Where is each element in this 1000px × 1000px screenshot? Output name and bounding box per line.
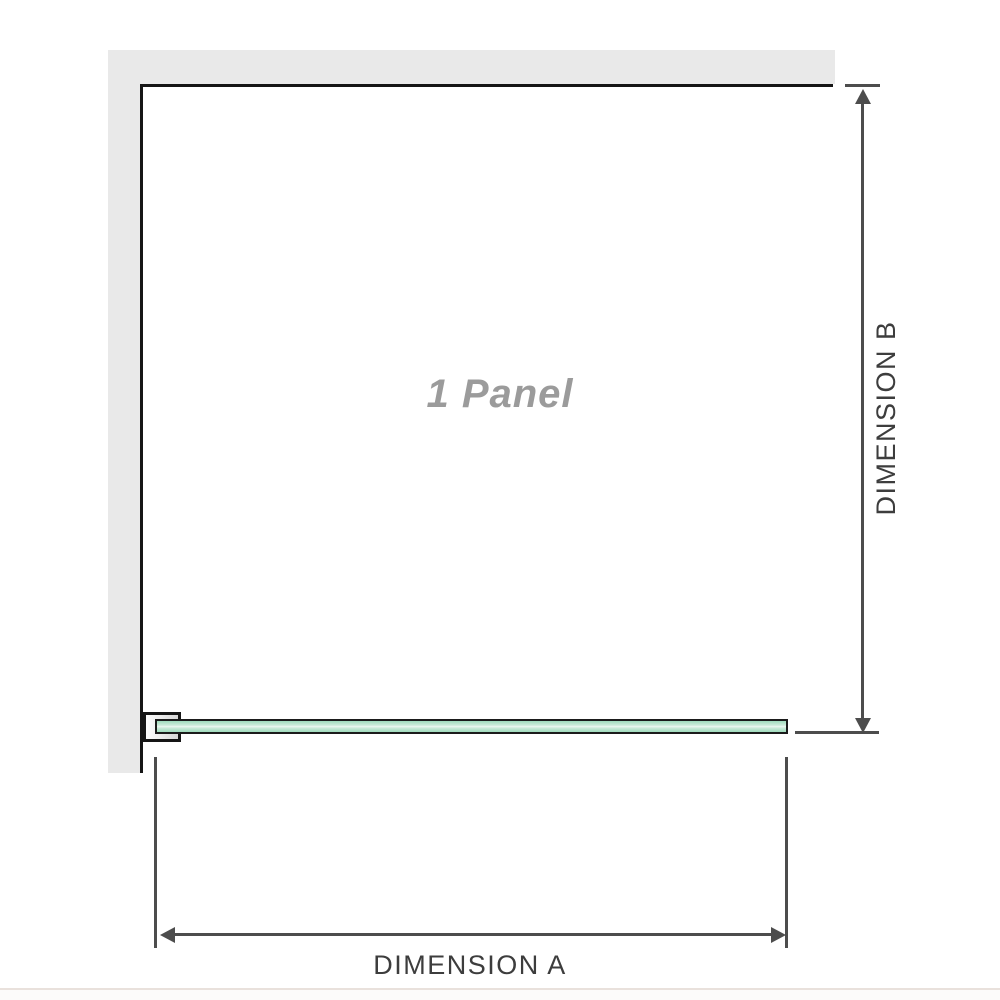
wall-inner-edge-left (140, 84, 143, 773)
panel-count-label: 1 Panel (300, 372, 700, 417)
bottom-strip (0, 990, 1000, 1000)
dimension-a-line (165, 933, 780, 936)
glass-panel (155, 719, 788, 734)
arrow-down-icon (855, 718, 871, 736)
dimension-a-extension-left (154, 757, 157, 948)
dimension-a-label: DIMENSION A (320, 950, 620, 981)
wall-inner-edge-top (140, 84, 833, 87)
dimension-b-label: DIMENSION B (871, 218, 901, 618)
wall-left (108, 50, 140, 773)
shower-screen-diagram: 1 Panel DIMENSION B DIMENSION A (0, 0, 1000, 1000)
dimension-a-extension-right (785, 757, 788, 948)
arrow-up-icon (855, 86, 871, 104)
dimension-b-line (861, 95, 864, 725)
arrow-left-icon (157, 927, 175, 943)
arrow-right-icon (771, 927, 789, 943)
wall-top (108, 50, 835, 84)
